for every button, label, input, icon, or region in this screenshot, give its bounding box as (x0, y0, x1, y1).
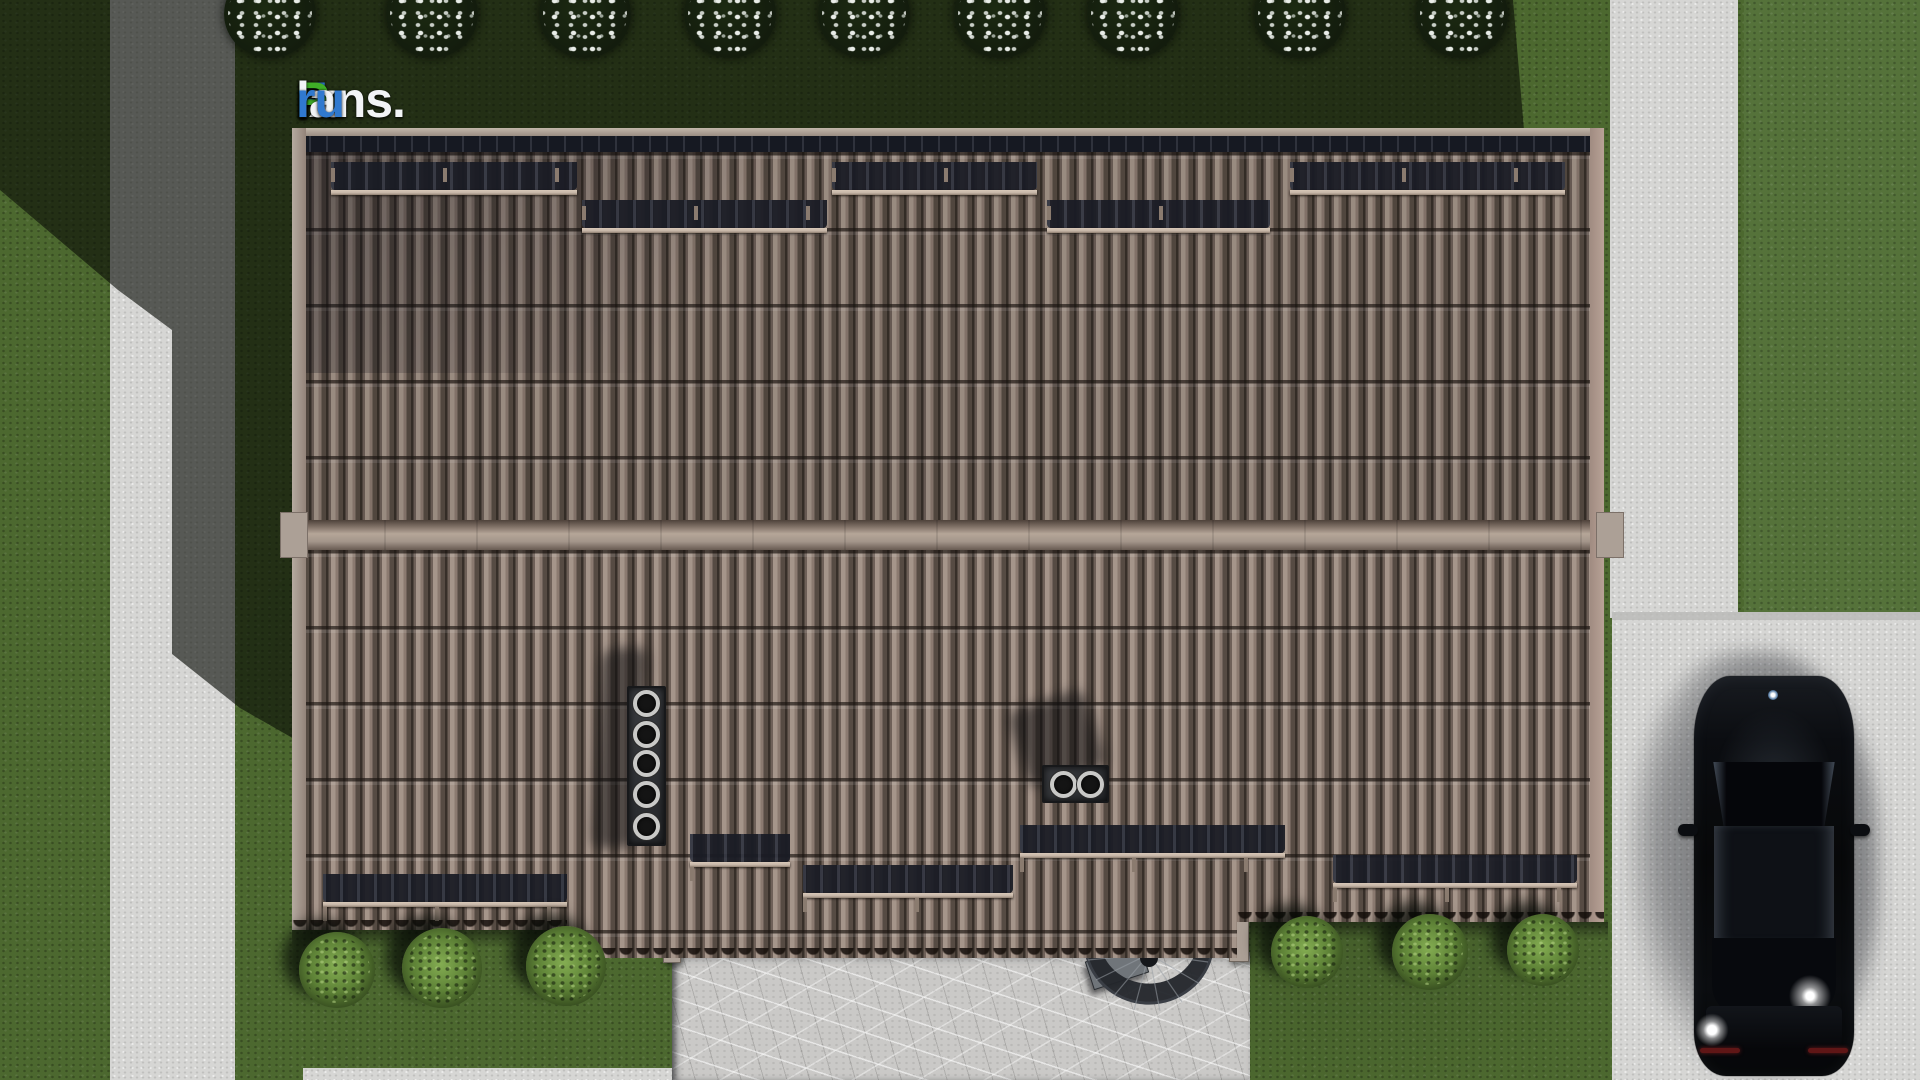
bush (526, 926, 606, 1006)
bush (299, 932, 375, 1008)
rail-brackets (582, 206, 827, 220)
roof-ridge-trim-top (292, 128, 1604, 136)
snow-guard-rail (1047, 228, 1270, 233)
car-hood (1702, 692, 1846, 766)
logo-segment: ru (296, 72, 344, 128)
car-side-mirror (1678, 824, 1698, 836)
flue-outlet (633, 781, 660, 808)
flue-outlet (1077, 771, 1104, 798)
snow-guard-rail (1290, 190, 1565, 195)
rail-brackets (1290, 168, 1565, 182)
bush (1271, 916, 1343, 988)
house-roof (292, 128, 1604, 958)
car-windshield (1708, 762, 1840, 828)
roof-eave-middle (567, 948, 1237, 958)
rail-brackets (1020, 858, 1285, 872)
ridge-end-cap-right (1596, 512, 1624, 558)
flue-outlet (633, 721, 660, 748)
flue-outlet (1050, 771, 1077, 798)
car-side-mirror (1850, 824, 1870, 836)
rail-shadow-band (1333, 855, 1577, 883)
grass-corner-top-right (1744, 0, 1920, 612)
car-taillight (1808, 1048, 1848, 1053)
rail-shadow-band (803, 865, 1013, 893)
walkway-right (1610, 0, 1738, 618)
rail-brackets (1047, 206, 1270, 220)
render-scene: FixPlans.ru (0, 0, 1920, 1080)
sidewalk-strip-bottom (303, 1068, 675, 1080)
snow-guard-rail (331, 190, 577, 195)
roof-slope-upper (292, 152, 1604, 520)
bush (1507, 914, 1579, 986)
rail-shadow-band (1020, 825, 1285, 853)
flue-outlet (633, 813, 660, 840)
rail-shadow-band (690, 834, 790, 862)
bush (402, 928, 482, 1008)
rail-brackets (803, 898, 1013, 912)
car-emblem (1768, 690, 1778, 700)
flue-outlet (633, 750, 660, 777)
rail-shadow-band (323, 874, 567, 902)
snow-guard-rail (832, 190, 1037, 195)
rail-brackets (331, 168, 577, 182)
roof-ridge (292, 520, 1604, 550)
roof-eave-left (292, 920, 567, 930)
snow-guard-rail (582, 228, 827, 233)
roof-gutter-band (292, 136, 1604, 152)
rail-brackets (1333, 888, 1577, 902)
car-roof (1714, 826, 1834, 942)
parked-car (1694, 676, 1854, 1076)
driveway-seam (1612, 612, 1920, 620)
rail-brackets (323, 907, 567, 921)
car-taillight (1700, 1048, 1740, 1053)
rail-brackets (690, 867, 790, 881)
rail-brackets (832, 168, 1037, 182)
sun-glare-taillight (1694, 1012, 1730, 1048)
ridge-end-cap-left (280, 512, 308, 558)
bush (1392, 914, 1468, 990)
flue-outlet (633, 690, 660, 717)
